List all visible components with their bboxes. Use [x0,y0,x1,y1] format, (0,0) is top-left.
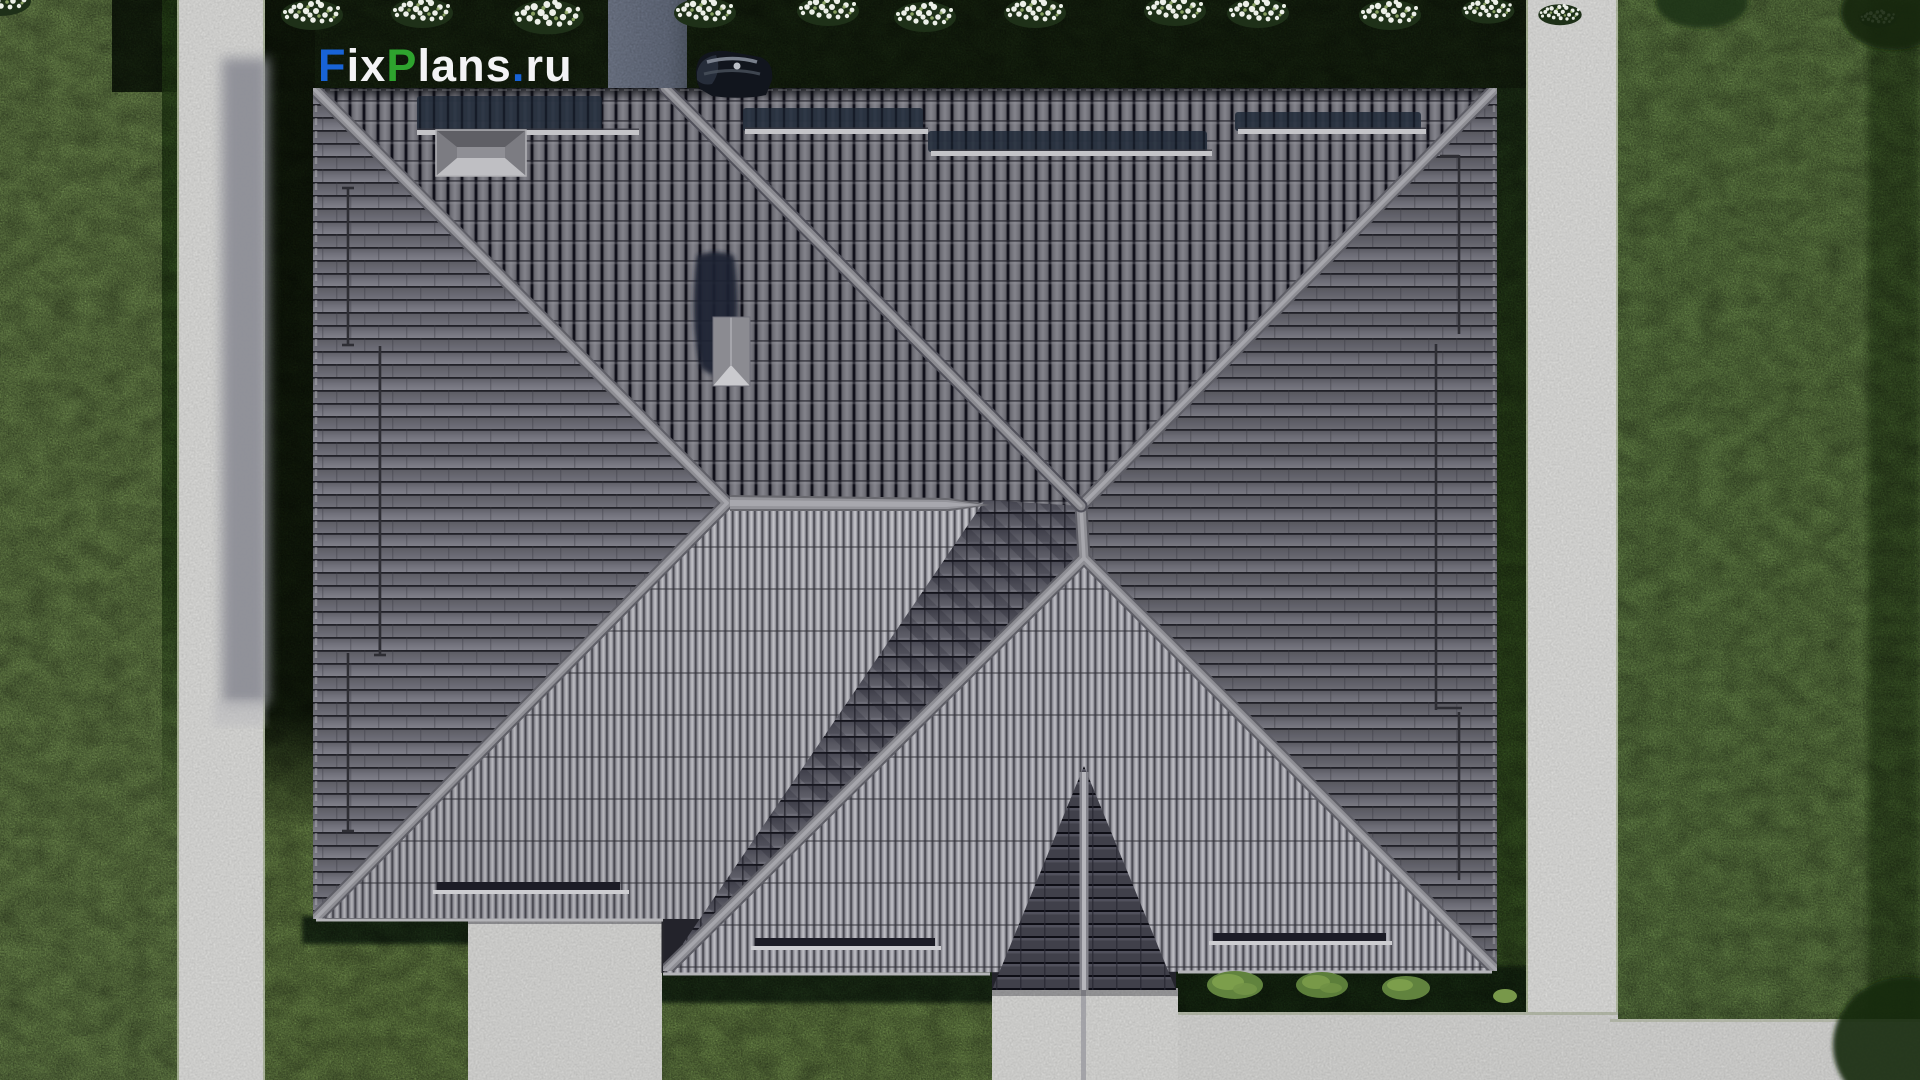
svg-text:FixPlans.ru: FixPlans.ru [318,40,573,91]
